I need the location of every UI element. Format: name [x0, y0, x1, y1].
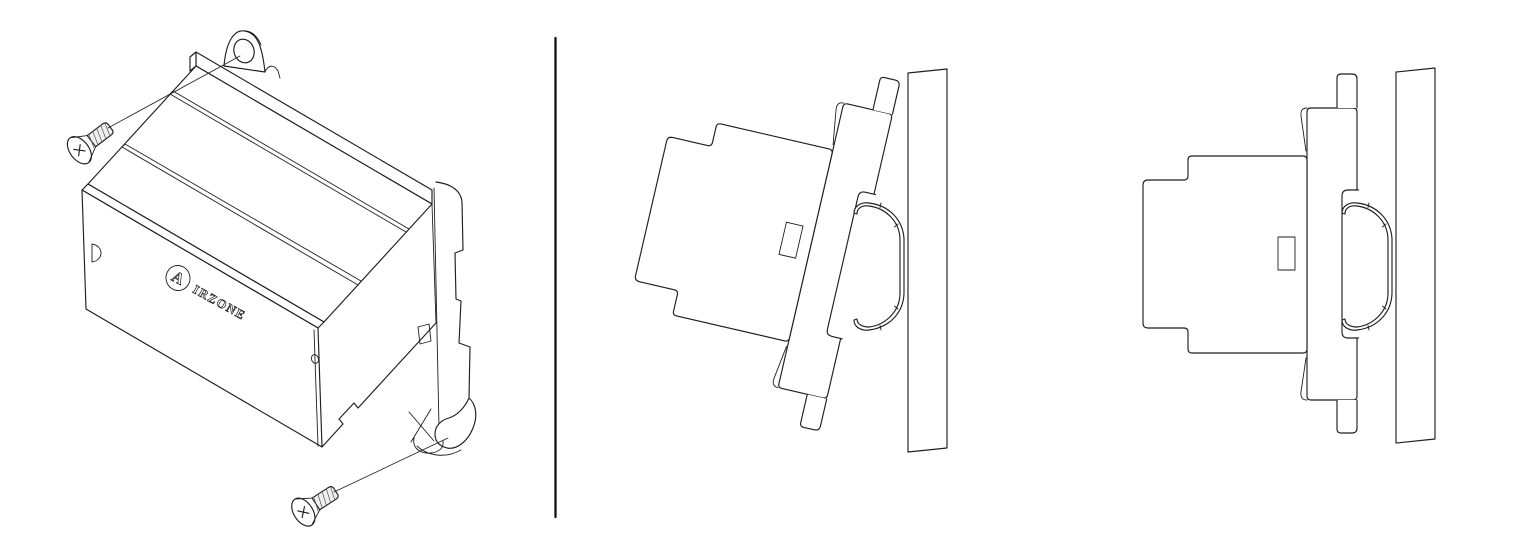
screw-shank [312, 485, 339, 510]
wall-board [1396, 68, 1435, 443]
wall-board [908, 69, 947, 452]
side-slot [418, 324, 431, 344]
installation-diagram: A IRZONE [0, 0, 1514, 555]
rear-right-inner-edge [434, 188, 439, 428]
rear-right-step-profile [436, 182, 470, 398]
device-body-isometric [82, 66, 436, 447]
top-mounting-tab [873, 77, 900, 115]
screw-leader-line-bottom [334, 438, 448, 492]
mounting-screw-bottom [287, 478, 344, 530]
bottom-mounting-tab [800, 394, 827, 431]
bottom-mounting-lug [435, 398, 476, 448]
device-side-view-mounted [1143, 74, 1359, 433]
device-side-view-tilted [611, 33, 902, 431]
panel-din-rail-hook-step [611, 33, 947, 452]
panel-isometric-screw-mounting: A IRZONE [62, 31, 475, 530]
din-profile-right-end [409, 182, 476, 455]
installation-diagram-page: A IRZONE [0, 0, 1514, 555]
panel-din-rail-mounted-step [1143, 68, 1435, 443]
clip-spring-brace [409, 409, 434, 442]
top-mounting-tab [1337, 74, 1357, 108]
side-slot [1278, 237, 1295, 270]
bottom-mounting-tab [1337, 400, 1357, 433]
